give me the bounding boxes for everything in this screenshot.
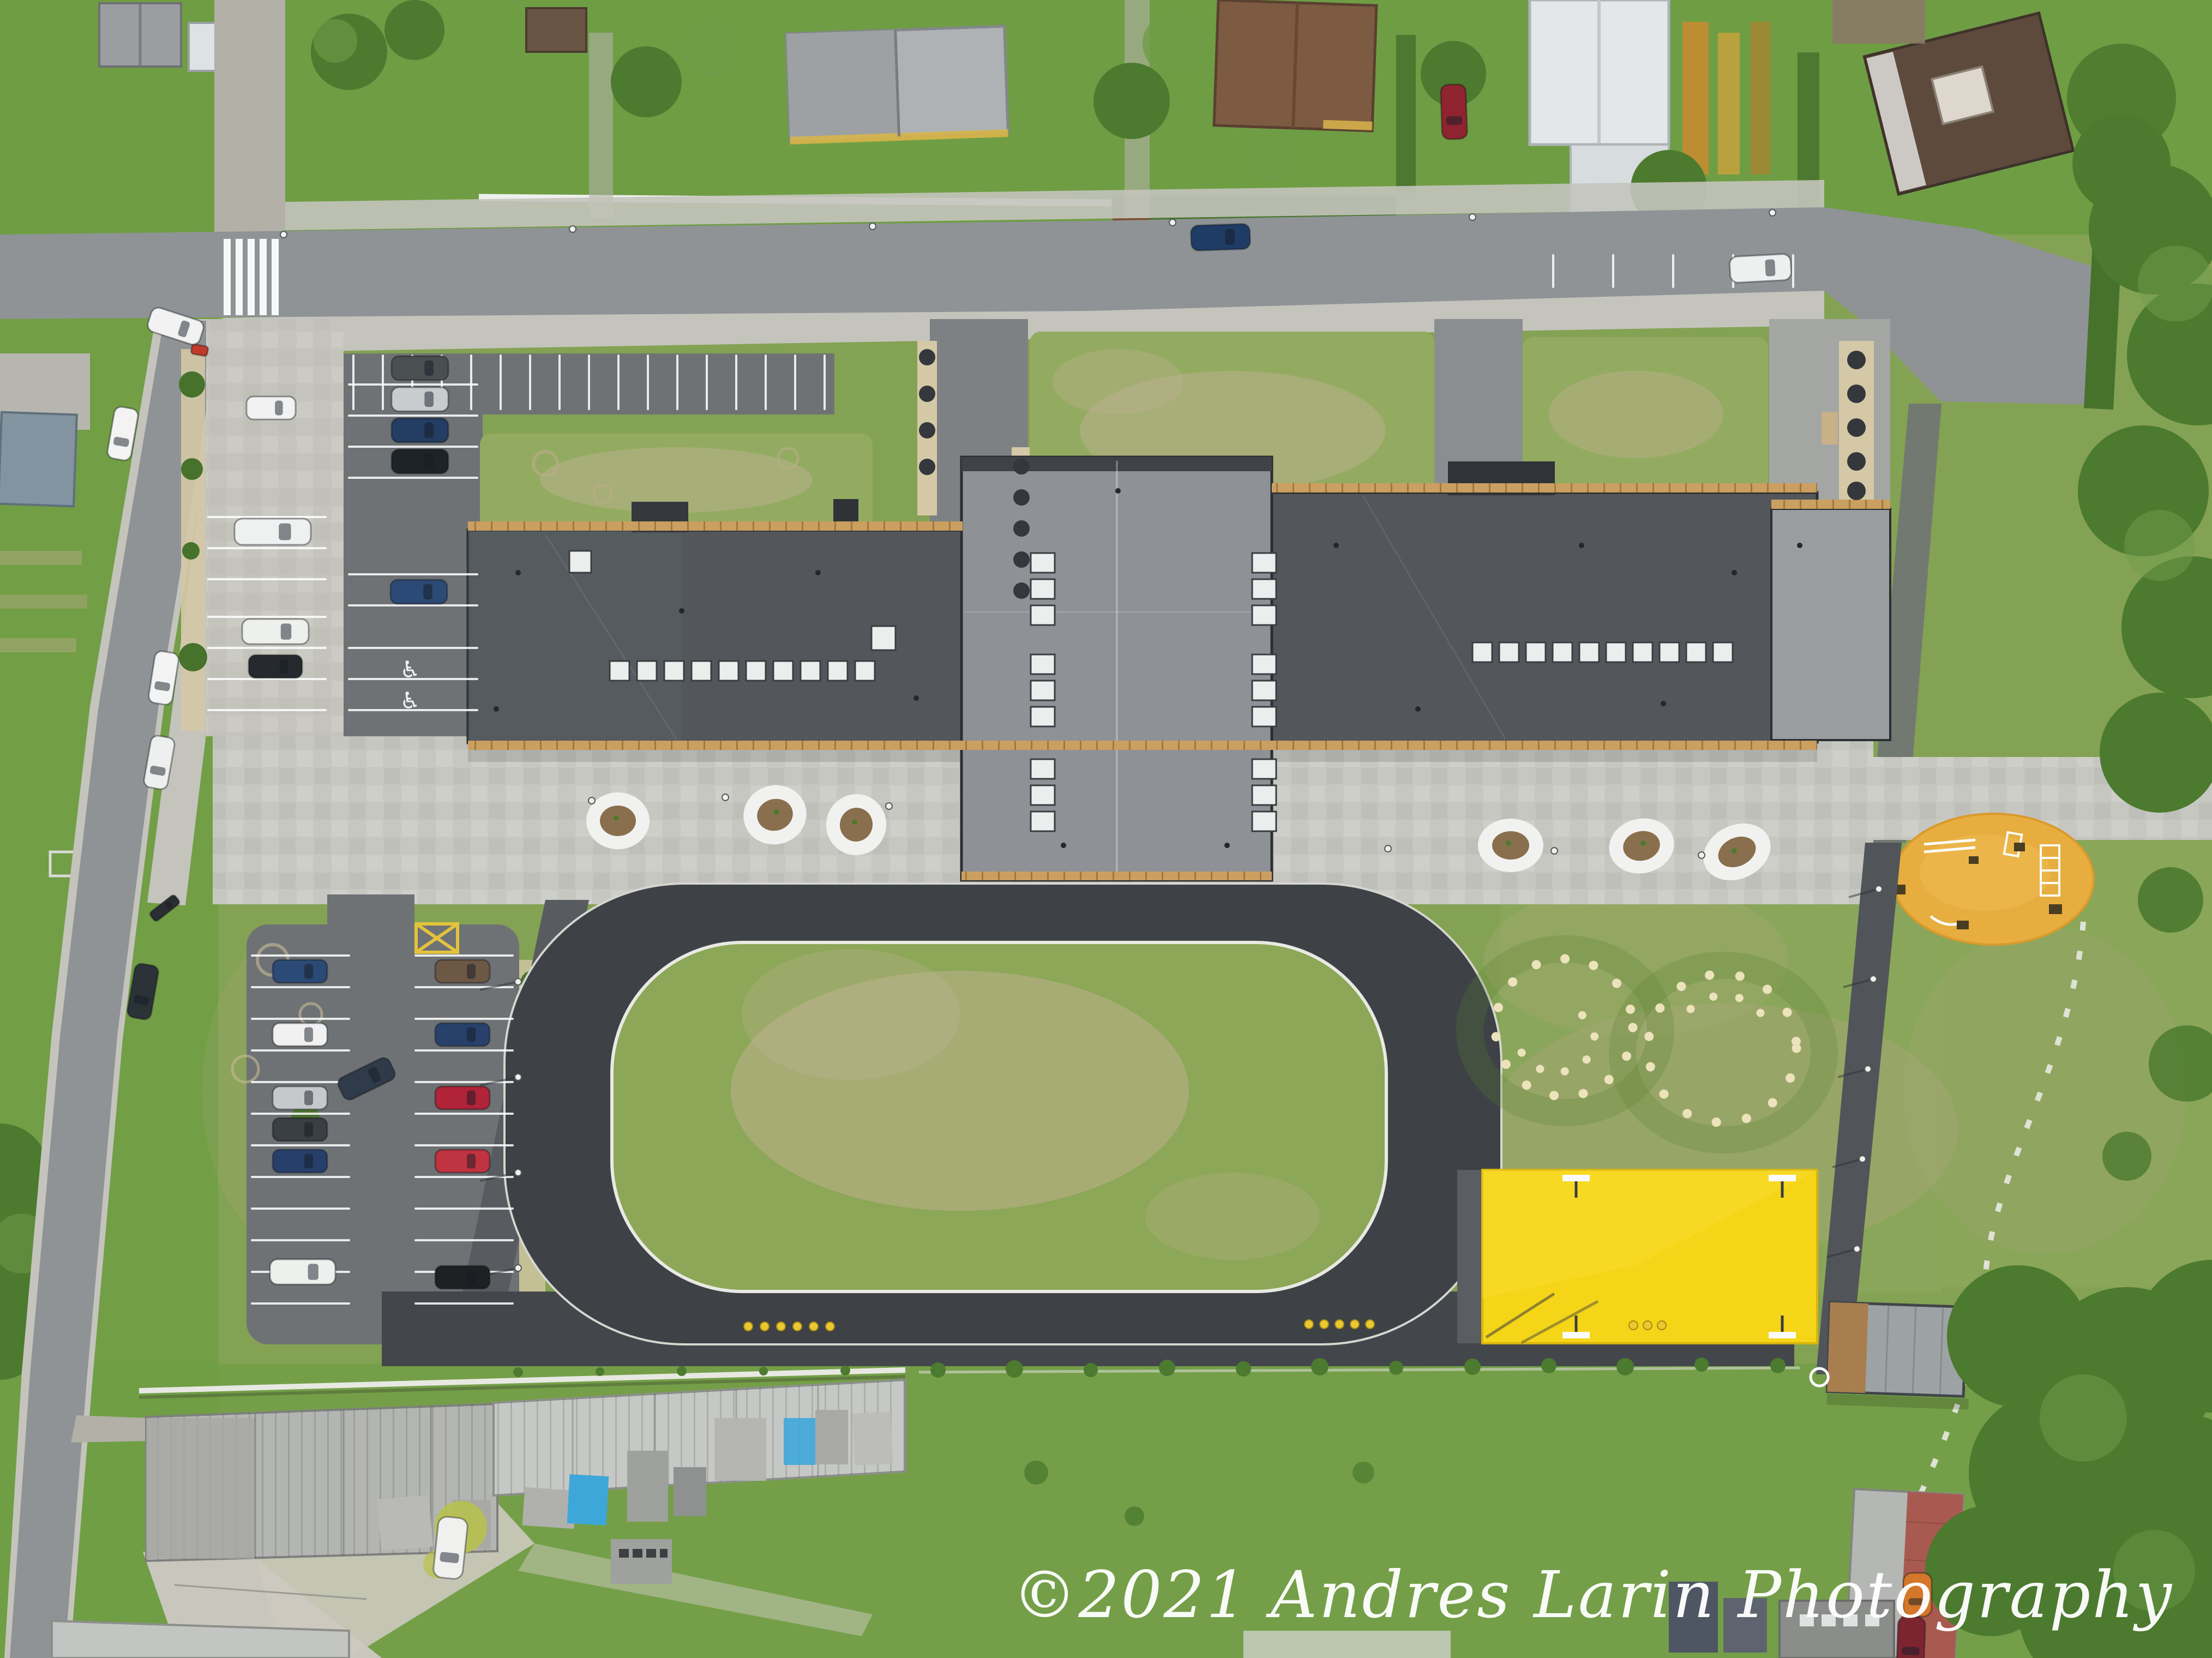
- east-end-roof: [1771, 509, 1890, 740]
- handicap-icon: ♿: [400, 656, 420, 683]
- vehicle-car-blue-main-road: [1191, 224, 1251, 251]
- blue-tarp-pool: [567, 1474, 609, 1525]
- vehicle-van-white-lower-l6: [270, 1259, 335, 1284]
- vehicle-car-red-driveway: [1440, 84, 1467, 140]
- greenhouse-roof: [1243, 1631, 1451, 1658]
- vehicle-van-white-street-1: [235, 519, 311, 545]
- planting-strip: [181, 349, 205, 731]
- vehicle-car-blue-lower-l1: [273, 960, 327, 983]
- house-bluegray: [0, 412, 77, 507]
- outdoor-gym-playground: [1892, 814, 2094, 945]
- house-metal-roof: [786, 26, 1008, 145]
- lawn-shed: [833, 499, 858, 523]
- vehicle-car-black-street: [249, 655, 302, 678]
- garden-path: [589, 33, 613, 218]
- house-brown-roof: [1214, 0, 1377, 131]
- shed-small: [611, 1539, 672, 1584]
- vehicle-car-brown-lower-r1: [435, 960, 490, 983]
- vehicle-van-white-street-2: [242, 619, 309, 644]
- vehicle-car-white-street: [247, 397, 296, 419]
- sports-court: [1457, 1170, 1817, 1343]
- vehicle-car-blue-lower-r2: [435, 1023, 490, 1046]
- aerial-photo: ♿ ♿ ©2021 Andres Larin Photography: [0, 0, 2212, 1658]
- vehicle-car-white-garages: [432, 1516, 468, 1579]
- east-wing-roof: [1272, 492, 1817, 742]
- hedge-vertical: [1396, 35, 1416, 193]
- vehicle-car-suv-upper-1: [392, 356, 448, 380]
- vehicle-scooter-red: [191, 344, 209, 357]
- oval-planter: [1478, 819, 1543, 872]
- oval-planter: [586, 792, 650, 849]
- vehicle-car-crimson-lower-r3: [435, 1086, 490, 1109]
- vehicle-car-blue-lower-l5: [273, 1150, 327, 1173]
- flower-garden: [1682, 22, 1770, 175]
- garage-access: [71, 1415, 150, 1443]
- vehicle-car-silver-lower-l3: [273, 1086, 327, 1109]
- vehicle-car-black-lower-r5: [435, 1266, 490, 1289]
- pallet: [1822, 412, 1838, 444]
- house-small-topright: [1832, 0, 1925, 44]
- vehicle-car-white-lower-l2: [273, 1023, 327, 1046]
- running-track: [504, 884, 1501, 1344]
- watermark: ©2021 Andres Larin Photography: [1012, 1557, 2173, 1632]
- vehicle-car-graphite-lower-l4: [273, 1118, 327, 1141]
- shed-dark-top: [526, 8, 586, 52]
- vehicle-car-red-lower-r4: [435, 1150, 490, 1173]
- handicap-icon: ♿: [400, 687, 420, 714]
- vehicle-van-white-roadside: [1729, 254, 1792, 283]
- vehicle-car-black-upper: [392, 449, 448, 473]
- blue-tarp: [784, 1418, 815, 1465]
- vehicle-car-blue-upper-2: [390, 580, 447, 604]
- vehicle-car-blue-upper-1: [392, 418, 448, 442]
- house-gray-left: [99, 3, 181, 67]
- vehicle-car-silver-upper: [392, 387, 448, 411]
- north-lane-gravel: [214, 0, 285, 240]
